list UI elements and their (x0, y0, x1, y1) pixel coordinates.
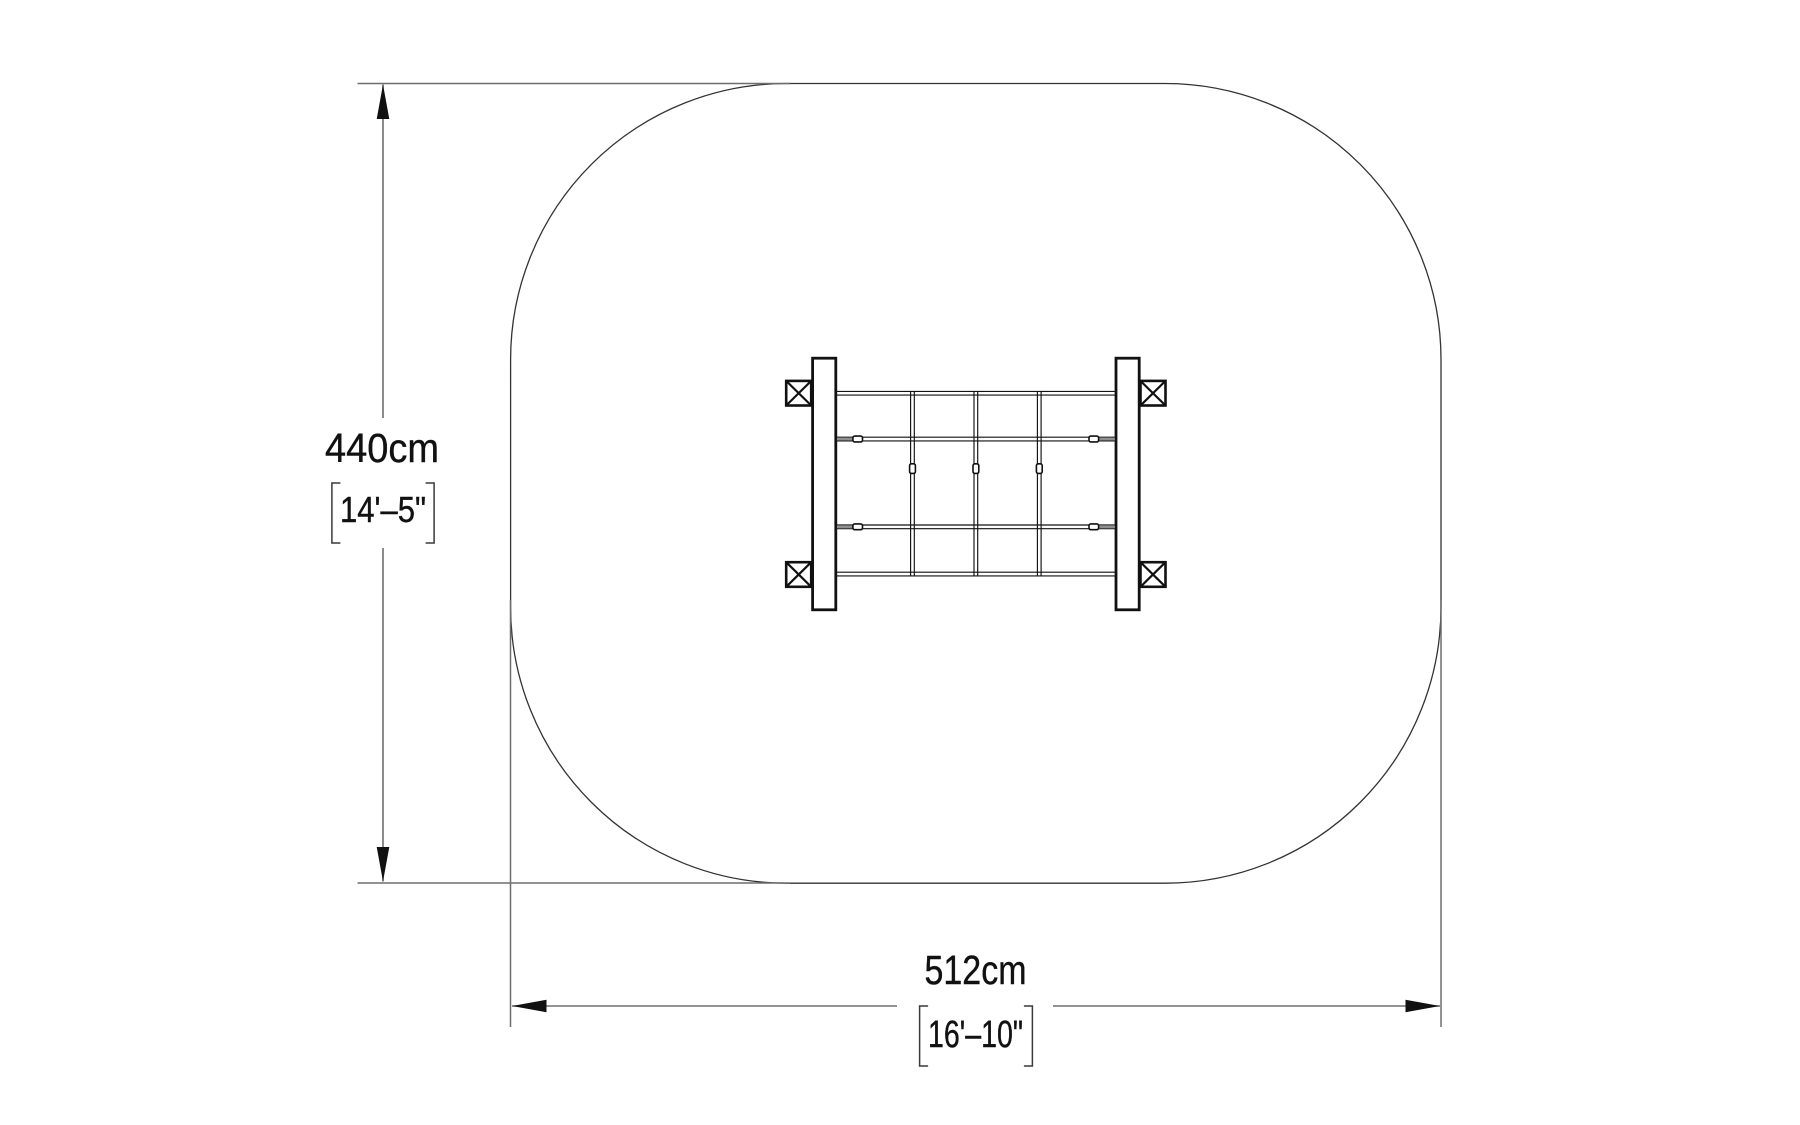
svg-text:14'–5": 14'–5" (340, 489, 426, 530)
svg-text:16'–10": 16'–10" (928, 1014, 1023, 1056)
svg-text:440cm: 440cm (325, 425, 439, 471)
svg-text:512cm: 512cm (925, 947, 1027, 993)
